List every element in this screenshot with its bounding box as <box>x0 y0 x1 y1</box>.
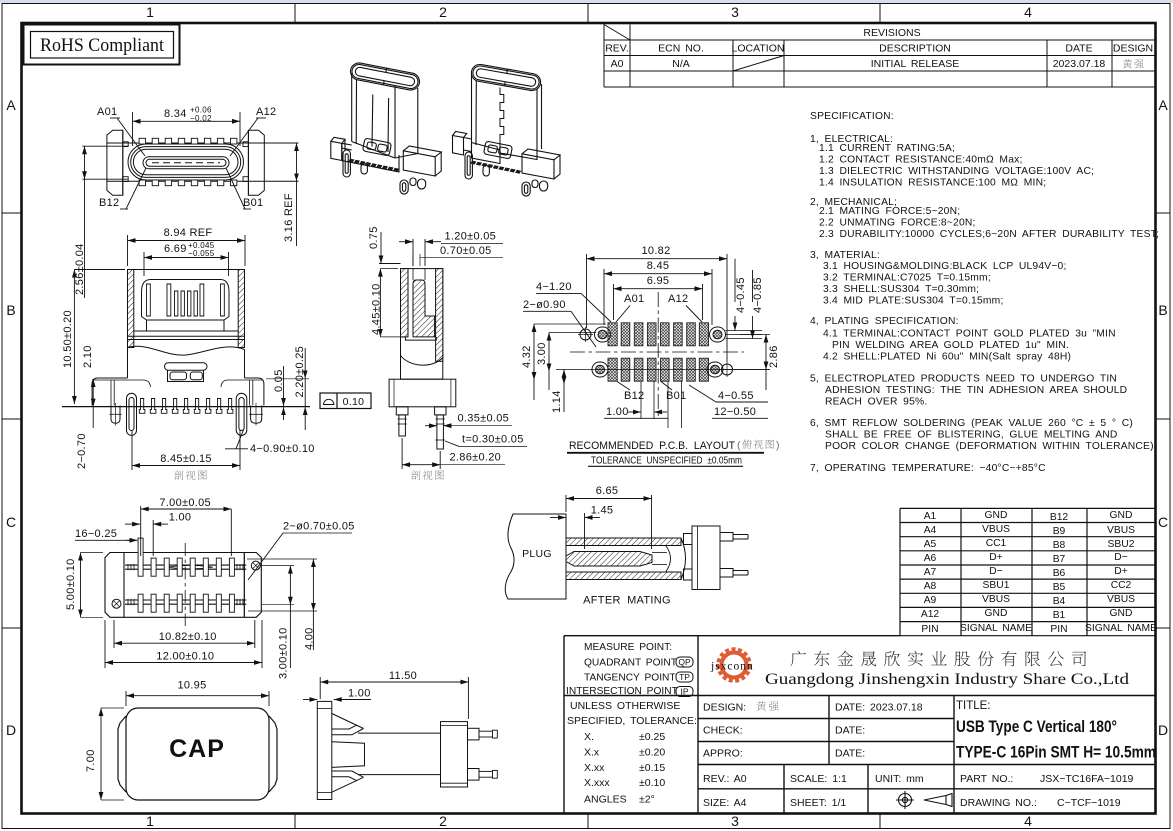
svg-text:1.00: 1.00 <box>348 688 371 700</box>
svg-text:INTERSECTION POINT: INTERSECTION POINT <box>566 686 678 697</box>
svg-text:A12: A12 <box>921 609 940 620</box>
svg-text:REACH OVER 95%.: REACH OVER 95%. <box>825 397 927 408</box>
svg-text:4−0.85: 4−0.85 <box>752 277 764 313</box>
svg-text:2.10: 2.10 <box>82 345 94 368</box>
svg-text:4: 4 <box>1024 813 1032 829</box>
svg-text:2.2 UNMATING FORCE:8~20N;: 2.2 UNMATING FORCE:8~20N; <box>819 218 976 229</box>
svg-text:6.69: 6.69 <box>164 243 187 255</box>
svg-text:B01: B01 <box>666 390 686 402</box>
svg-text:MEASURE POINT:: MEASURE POINT: <box>584 642 672 653</box>
svg-text:4.00: 4.00 <box>304 627 316 650</box>
svg-text:7.00: 7.00 <box>85 749 97 772</box>
svg-text:D+: D+ <box>989 552 1002 563</box>
svg-text:SHEET: 1/1: SHEET: 1/1 <box>790 797 846 809</box>
svg-text:1: 1 <box>146 813 154 829</box>
svg-text:A: A <box>6 97 16 113</box>
svg-text:INITIAL RELEASE: INITIAL RELEASE <box>871 58 960 70</box>
svg-text:DATE:: DATE: <box>835 725 865 737</box>
svg-text:B: B <box>1158 302 1167 318</box>
svg-text:1.00: 1.00 <box>169 512 192 524</box>
svg-text:10.95: 10.95 <box>177 680 206 692</box>
svg-text:IP: IP <box>680 687 688 697</box>
svg-text:REVISIONS: REVISIONS <box>863 27 920 39</box>
svg-text:Guangdong Jinshengxin Industry: Guangdong Jinshengxin Industry Share Co.… <box>765 671 1129 688</box>
svg-text:2.86±0.20: 2.86±0.20 <box>450 452 502 464</box>
svg-text:X.xx: X.xx <box>584 762 605 774</box>
svg-text:A12: A12 <box>256 106 276 118</box>
svg-text:UNIT: mm: UNIT: mm <box>875 773 924 785</box>
svg-text:ECN NO.: ECN NO. <box>658 43 704 55</box>
svg-text:UNLESS OTHERWISE: UNLESS OTHERWISE <box>570 700 680 712</box>
svg-text:C: C <box>1158 514 1168 530</box>
svg-text:5.00±0.10: 5.00±0.10 <box>65 558 77 610</box>
svg-text:B4: B4 <box>1053 596 1066 607</box>
svg-text:X.x: X.x <box>584 747 600 759</box>
svg-text:4.2 SHELL:PLATED Ni 60u" M: 4.2 SHELL:PLATED Ni 60u" MIN(Salt spray … <box>823 352 1071 363</box>
svg-text:A7: A7 <box>924 567 937 578</box>
svg-text:TITLE:: TITLE: <box>956 700 991 712</box>
svg-text:VBUS: VBUS <box>1107 594 1135 605</box>
svg-text:4.1 TERMINAL:CONTACT POINT: 4.1 TERMINAL:CONTACT POINT GOLD PLATED 3… <box>823 329 1116 340</box>
svg-text:B5: B5 <box>1053 582 1066 593</box>
svg-text:3.4 MID PLATE:SUS304 T=0.15: 3.4 MID PLATE:SUS304 T=0.15mm; <box>823 296 1004 307</box>
svg-text:8.94 REF: 8.94 REF <box>164 227 213 239</box>
svg-text:DESCRIPTION: DESCRIPTION <box>879 43 951 55</box>
svg-text:0.05: 0.05 <box>273 369 285 392</box>
svg-text:1.4 INSULATION RESISTANCE:10: 1.4 INSULATION RESISTANCE:100 MΩ MIN; <box>819 178 1046 189</box>
svg-text:TOLERANCE UNSPECIFIED ±0.05m: TOLERANCE UNSPECIFIED ±0.05mm <box>591 456 742 467</box>
svg-text:1.2 CONTACT RESISTANCE:40mΩ: 1.2 CONTACT RESISTANCE:40mΩ Max; <box>819 155 1023 166</box>
svg-text:GND: GND <box>985 510 1008 521</box>
svg-text:D−: D− <box>989 566 1002 577</box>
svg-text:SPECIFIED, TOLERANCE:: SPECIFIED, TOLERANCE: <box>567 715 697 727</box>
svg-text:A01: A01 <box>97 106 117 118</box>
svg-text:7.00±0.05: 7.00±0.05 <box>159 497 211 509</box>
svg-text:4, PLATING SPECIFICATION:: 4, PLATING SPECIFICATION: <box>810 316 959 327</box>
svg-text:C: C <box>6 514 16 530</box>
svg-text:t=0.30±0.05: t=0.30±0.05 <box>462 434 524 446</box>
svg-text:PIN: PIN <box>1050 624 1067 635</box>
svg-text:±0.20: ±0.20 <box>639 747 665 759</box>
svg-text:10.82: 10.82 <box>641 245 670 257</box>
svg-text:16−0.25: 16−0.25 <box>75 528 117 540</box>
svg-text:USB Type C Vertical 180°: USB Type C Vertical 180° <box>956 717 1117 736</box>
svg-text:B12: B12 <box>1050 512 1069 523</box>
svg-text:TYPE-C 16Pin SMT H= 10.5mm: TYPE-C 16Pin SMT H= 10.5mm <box>956 743 1156 762</box>
svg-text:SIZE: A4: SIZE: A4 <box>703 797 747 809</box>
svg-text:2−ø0.90: 2−ø0.90 <box>523 299 566 311</box>
svg-text:ANGLES: ANGLES <box>584 794 627 806</box>
svg-text:2: 2 <box>439 4 447 20</box>
svg-text:0.10: 0.10 <box>343 396 365 408</box>
svg-text:3.2 TERMINAL:C7025 T=0.15mm;: 3.2 TERMINAL:C7025 T=0.15mm; <box>823 273 991 284</box>
svg-text:SPECIFICATION:: SPECIFICATION: <box>810 111 894 122</box>
svg-text:1.1 CURRENT RATING:5A;: 1.1 CURRENT RATING:5A; <box>819 143 955 154</box>
svg-text:2.3 DURABILITY:10000 CYCLES;: 2.3 DURABILITY:10000 CYCLES;6~20N AFTER … <box>819 229 1159 240</box>
svg-text:11.50: 11.50 <box>389 670 417 682</box>
svg-text:PLUG: PLUG <box>522 548 552 560</box>
svg-text:SIGNAL NAME: SIGNAL NAME <box>960 623 1032 634</box>
svg-text:A0: A0 <box>611 58 624 70</box>
svg-text:LOCATION: LOCATION <box>732 43 785 55</box>
svg-text:SHALL BE FREE OF BLISTERIN: SHALL BE FREE OF BLISTERING, GLUE MELTIN… <box>825 430 1118 441</box>
svg-text:8.45: 8.45 <box>647 260 670 272</box>
svg-text:GND: GND <box>1110 608 1133 619</box>
svg-text:GND: GND <box>985 608 1008 619</box>
svg-text:A6: A6 <box>924 553 937 564</box>
svg-text:X.xxx: X.xxx <box>584 777 610 789</box>
svg-text:DESIGN: DESIGN <box>1113 43 1153 55</box>
svg-text:1.14: 1.14 <box>551 390 563 413</box>
svg-text:PIN WELDING AREA GOLD PLAT: PIN WELDING AREA GOLD PLATED 1u" MIN. <box>832 340 1069 351</box>
svg-text:−0.055: −0.055 <box>188 249 215 258</box>
svg-text:REV.: A0: REV.: A0 <box>703 773 747 785</box>
svg-text:8.34: 8.34 <box>164 108 187 120</box>
svg-text:4: 4 <box>1024 4 1032 20</box>
svg-text:A1: A1 <box>924 511 937 522</box>
svg-text:7, OPERATING TEMPERATURE: −4: 7, OPERATING TEMPERATURE: −40°C~+85°C <box>810 463 1046 474</box>
svg-text:VBUS: VBUS <box>982 594 1010 605</box>
svg-text:A12: A12 <box>668 293 688 305</box>
svg-text:PIN: PIN <box>921 624 938 635</box>
svg-text:4−0.90±0.10: 4−0.90±0.10 <box>250 443 315 455</box>
svg-text:6, SMT REFLOW SOLDERING (PE: 6, SMT REFLOW SOLDERING (PEAK VALUE 260 … <box>810 418 1133 429</box>
svg-text:±0.15: ±0.15 <box>639 762 665 774</box>
svg-text:8.45±0.15: 8.45±0.15 <box>160 453 212 465</box>
svg-text:4−0.45: 4−0.45 <box>735 277 747 313</box>
svg-text:3.1 HOUSING&MOLDING:BLACK LC: 3.1 HOUSING&MOLDING:BLACK LCP UL94V−0; <box>823 261 1067 272</box>
svg-text:DATE:: DATE: <box>835 748 865 760</box>
svg-text:A9: A9 <box>924 595 937 606</box>
svg-text:2−0.70: 2−0.70 <box>76 433 88 469</box>
svg-text:A4: A4 <box>924 525 937 536</box>
svg-text:B01: B01 <box>243 197 263 209</box>
svg-text:RoHS Compliant: RoHS Compliant <box>40 36 165 56</box>
svg-text:3: 3 <box>731 813 739 829</box>
svg-text:2.86: 2.86 <box>768 345 780 368</box>
svg-text:GND: GND <box>1110 510 1133 521</box>
svg-text:A5: A5 <box>924 539 937 550</box>
svg-text:5, ELECTROPLATED PRODUCTS NE: 5, ELECTROPLATED PRODUCTS NEED TO UNDERG… <box>810 374 1117 385</box>
svg-text:CC1: CC1 <box>986 538 1007 549</box>
svg-text:0.75: 0.75 <box>368 226 380 249</box>
svg-text:B6: B6 <box>1053 568 1066 579</box>
svg-text:X.: X. <box>584 731 594 743</box>
svg-text:SBU2: SBU2 <box>1108 539 1135 550</box>
svg-text:POOR COLOR CHANGE (DEFORMAT: POOR COLOR CHANGE (DEFORMATION WITHIN TO… <box>825 441 1154 452</box>
svg-text:10.82±0.10: 10.82±0.10 <box>159 631 217 643</box>
svg-text:jsxconn: jsxconn <box>710 661 754 673</box>
svg-text:1.20±0.05: 1.20±0.05 <box>445 231 497 243</box>
svg-text:D: D <box>6 722 16 738</box>
svg-text:): ) <box>776 440 780 452</box>
svg-text:B9: B9 <box>1053 526 1066 537</box>
svg-text:CC2: CC2 <box>1111 580 1132 591</box>
svg-text:DATE: DATE <box>1065 43 1092 55</box>
svg-text:±0.25: ±0.25 <box>639 731 665 743</box>
svg-text:−0.02: −0.02 <box>190 114 212 123</box>
svg-text:2.1 MATING FORCE:5~20N;: 2.1 MATING FORCE:5~20N; <box>819 206 960 217</box>
svg-text:3, MATERIAL:: 3, MATERIAL: <box>810 250 880 261</box>
svg-text:VBUS: VBUS <box>982 524 1010 535</box>
svg-text:6.95: 6.95 <box>647 275 670 287</box>
svg-text:B1: B1 <box>1053 610 1066 621</box>
svg-text:(: ( <box>737 440 741 452</box>
svg-text:B12: B12 <box>99 197 119 209</box>
svg-text:3.16 REF: 3.16 REF <box>283 193 295 242</box>
svg-text:D−: D− <box>1114 552 1127 563</box>
svg-text:4.32: 4.32 <box>521 345 533 368</box>
svg-text:TP: TP <box>679 672 690 682</box>
svg-text:1.45: 1.45 <box>591 505 614 517</box>
svg-text:QUADRANT POINT: QUADRANT POINT <box>584 658 677 669</box>
svg-text:4−0.55: 4−0.55 <box>718 390 754 402</box>
svg-text:N/A: N/A <box>672 58 690 70</box>
svg-text:SIGNAL NAME: SIGNAL NAME <box>1085 623 1157 634</box>
svg-text:0.70±0.05: 0.70±0.05 <box>440 245 492 257</box>
svg-text:3.3 SHELL:SUS304 T=0.30mm;: 3.3 SHELL:SUS304 T=0.30mm; <box>823 284 979 295</box>
svg-text:DESIGN:: DESIGN: <box>703 702 746 714</box>
svg-text:1.3 DIELECTRIC WITHSTANDING: 1.3 DIELECTRIC WITHSTANDING VOLTAGE:100V… <box>819 166 1094 177</box>
svg-text:12.00±0.10: 12.00±0.10 <box>156 651 214 663</box>
svg-text:DATE: 2023.07.18: DATE: 2023.07.18 <box>835 702 923 714</box>
svg-text:2: 2 <box>439 813 447 829</box>
svg-text:B: B <box>6 302 15 318</box>
svg-text:B8: B8 <box>1053 540 1066 551</box>
svg-text:D+: D+ <box>1114 566 1127 577</box>
svg-text:10.50±0.20: 10.50±0.20 <box>62 310 74 368</box>
svg-text:3: 3 <box>731 4 739 20</box>
svg-text:D: D <box>1158 722 1168 738</box>
svg-text:2023.07.18: 2023.07.18 <box>1053 58 1106 70</box>
svg-text:3.00: 3.00 <box>536 342 548 365</box>
svg-text:RECOMMENDED P.C.B. LAYOUT: RECOMMENDED P.C.B. LAYOUT <box>569 440 735 452</box>
svg-text:DRAWING NO.:: DRAWING NO.: <box>960 797 1037 809</box>
svg-text:APPRO:: APPRO: <box>703 748 743 760</box>
svg-text:ADHESION TESTING: THE TIN: ADHESION TESTING: THE TIN ADHESION AREA … <box>825 385 1127 396</box>
svg-text:REV.: REV. <box>605 43 629 55</box>
svg-text:JSX−TC16FA−1019: JSX−TC16FA−1019 <box>1040 773 1134 785</box>
svg-text:3.00±0.10: 3.00±0.10 <box>278 627 290 679</box>
svg-text:4.45±0.10: 4.45±0.10 <box>371 283 383 335</box>
svg-text:±0.10: ±0.10 <box>639 777 665 789</box>
svg-text:SBU1: SBU1 <box>983 580 1010 591</box>
svg-text:CHECK:: CHECK: <box>703 725 743 737</box>
svg-text:SCALE: 1:1: SCALE: 1:1 <box>790 773 847 785</box>
svg-text:2.20±0.25: 2.20±0.25 <box>294 346 306 398</box>
svg-text:1.00: 1.00 <box>606 406 629 418</box>
svg-text:A: A <box>1158 97 1168 113</box>
svg-text:4−1.20: 4−1.20 <box>536 281 572 293</box>
svg-text:PART NO.:: PART NO.: <box>960 773 1013 785</box>
svg-text:0.35±0.05: 0.35±0.05 <box>458 413 510 425</box>
svg-text:B7: B7 <box>1053 554 1066 565</box>
svg-text:VBUS: VBUS <box>1107 525 1135 536</box>
svg-text:±2°: ±2° <box>639 794 655 806</box>
svg-text:AFTER MATING: AFTER MATING <box>583 595 671 607</box>
svg-text:CAP: CAP <box>169 735 225 763</box>
svg-text:A01: A01 <box>624 293 644 305</box>
svg-text:QP: QP <box>678 657 691 667</box>
svg-text:B12: B12 <box>624 390 644 402</box>
svg-text:A8: A8 <box>924 581 937 592</box>
svg-text:TANGENCY POINT: TANGENCY POINT <box>584 673 676 684</box>
svg-text:1: 1 <box>146 4 154 20</box>
svg-text:2−ø0.70±0.05: 2−ø0.70±0.05 <box>283 521 355 533</box>
svg-text:12−0.50: 12−0.50 <box>714 406 756 418</box>
svg-text:6.65: 6.65 <box>596 485 619 497</box>
svg-text:C−TCF−1019: C−TCF−1019 <box>1057 797 1121 809</box>
